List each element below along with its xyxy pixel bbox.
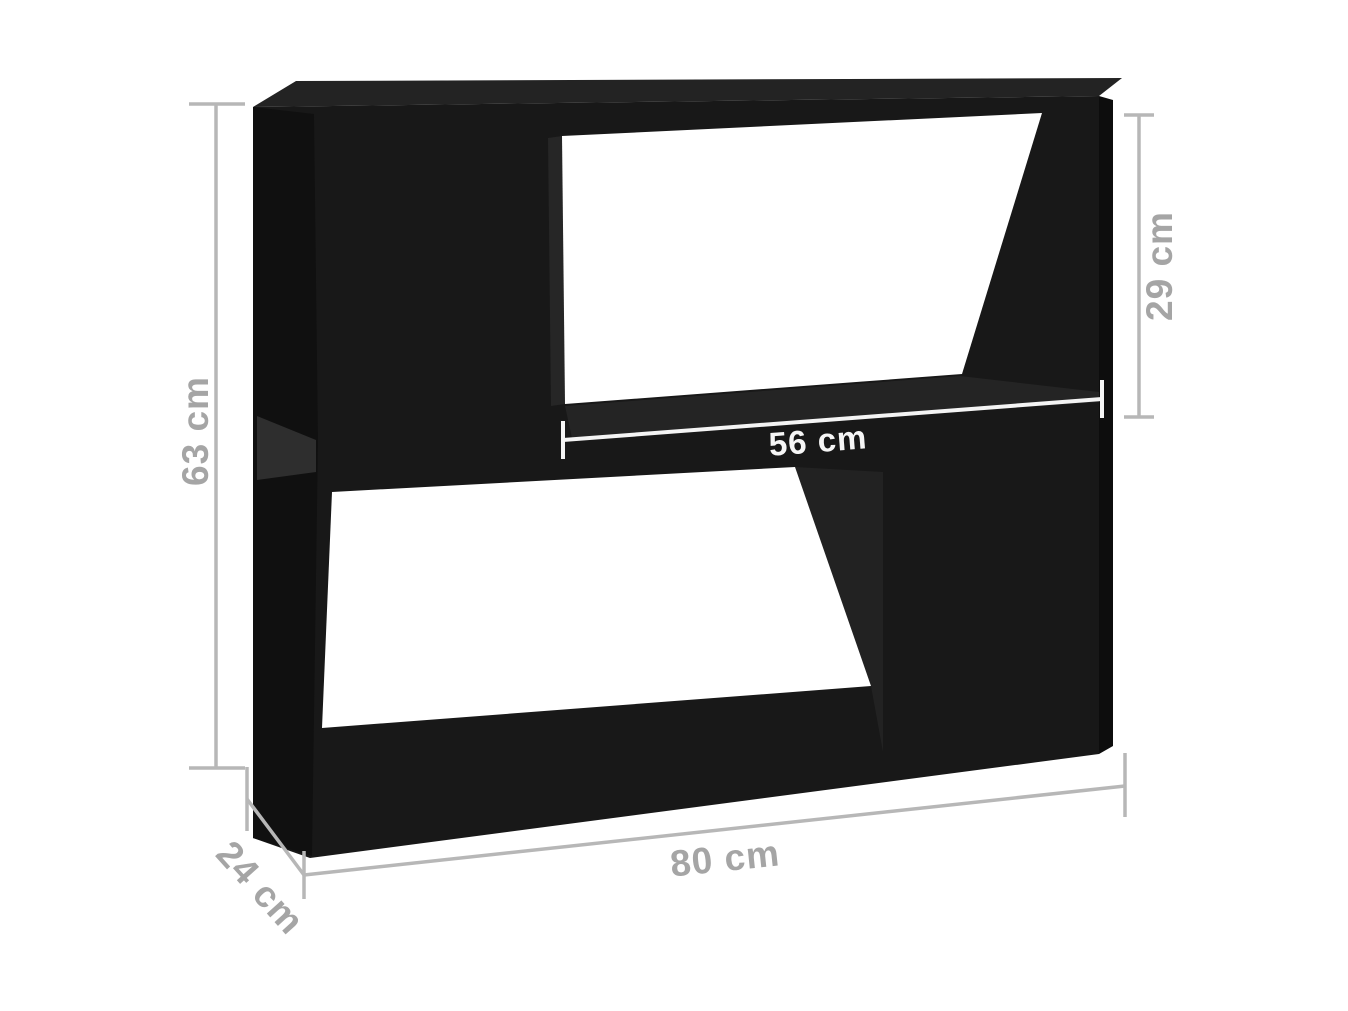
dim-label-opening-width: 56 cm — [767, 418, 868, 464]
cabinet-right-side-face — [1099, 96, 1113, 754]
dim-label-opening-height: 29 cm — [1139, 211, 1181, 321]
opening-bottom-left — [322, 467, 871, 728]
cabinet — [253, 78, 1122, 858]
product-dimension-figure: 63 cm 29 cm 56 cm 80 cm 24 cm — [0, 0, 1348, 1011]
cabinet-left-side-face — [253, 107, 318, 856]
cabinet-top-divider-edge-shade — [548, 136, 565, 406]
dim-label-height: 63 cm — [175, 376, 217, 486]
